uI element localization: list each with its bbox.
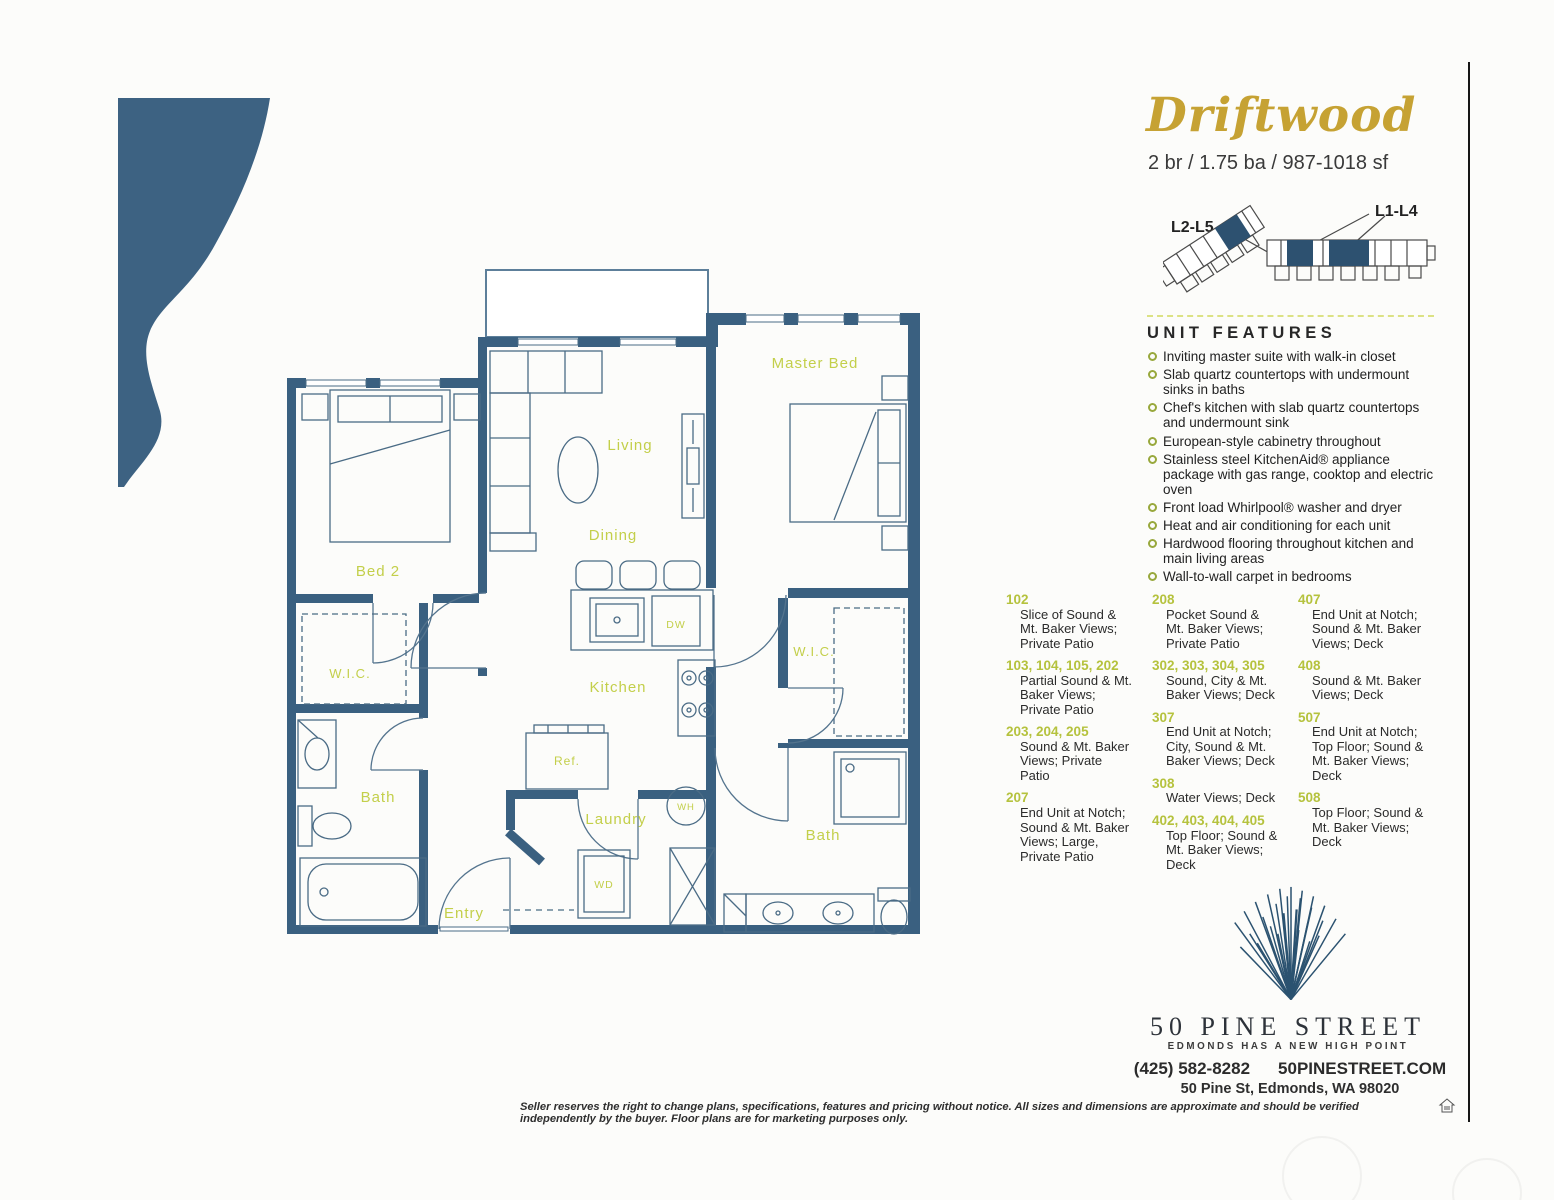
room-label-laundry: Laundry [585, 811, 646, 828]
scan-artifact-circle [1452, 1158, 1522, 1200]
page-edge-line [1468, 62, 1470, 1122]
label-refrigerator: Ref. [554, 754, 580, 768]
brand-contact: (425) 582-828250PINESTREET.COM [1100, 1059, 1480, 1079]
label-dishwasher: DW [666, 619, 686, 631]
unit-list-column-1: 102Slice of Sound & Mt. Baker Views; Pri… [1006, 592, 1136, 871]
bullet-icon [1148, 539, 1157, 548]
kitchen-island [571, 561, 713, 650]
room-label-master-bed: Master Bed [772, 355, 859, 372]
unit-entry: 307End Unit at Notch; City, Sound & Mt. … [1152, 710, 1282, 769]
brand-logo-name: 50 PINE STREET [1140, 1012, 1436, 1042]
room-label-kitchen: Kitchen [589, 679, 646, 696]
feature-item: Slab quartz countertops with undermount … [1147, 367, 1435, 397]
feature-item: Front load Whirlpool® washer and dryer [1147, 500, 1435, 515]
room-label-entry: Entry [444, 905, 484, 922]
features-divider [1147, 315, 1434, 317]
highlighted-unit-1 [1287, 240, 1313, 266]
phone-number: (425) 582-8282 [1134, 1059, 1250, 1078]
scan-artifact-circle [1282, 1136, 1362, 1200]
feature-item: Hardwood flooring throughout kitchen and… [1147, 536, 1435, 566]
feature-item: Inviting master suite with walk-in close… [1147, 349, 1435, 364]
feature-item: Chef's kitchen with slab quartz countert… [1147, 400, 1435, 430]
label-washer-dryer: WD [594, 879, 614, 891]
tv-console [682, 414, 704, 518]
keyplan-right-label: L1-L4 [1375, 203, 1418, 220]
unit-entry: 407End Unit at Notch; Sound & Mt. Baker … [1298, 592, 1428, 651]
feature-item: European-style cabinetry throughout [1147, 434, 1435, 449]
unit-entry: 507End Unit at Notch; Top Floor; Sound &… [1298, 710, 1428, 784]
floor-plan: Living Master Bed Bed 2 Dining Kitchen W… [278, 258, 928, 946]
bullet-icon [1148, 352, 1157, 361]
unit-entry: 308Water Views; Deck [1152, 776, 1282, 806]
pine-tuft-icon [1216, 884, 1366, 1008]
coffee-table [558, 437, 598, 503]
room-label-dining: Dining [589, 527, 638, 544]
plan-title: Driftwood [1146, 88, 1416, 143]
room-label-living: Living [607, 437, 652, 454]
unit-entry: 103, 104, 105, 202Partial Sound & Mt. Ba… [1006, 658, 1136, 717]
bullet-icon [1148, 403, 1157, 412]
website: 50PINESTREET.COM [1278, 1059, 1446, 1078]
unit-list-column-2: 208Pocket Sound & Mt. Baker Views; Priva… [1152, 592, 1282, 879]
bullet-icon [1148, 572, 1157, 581]
room-label-bath-right: Bath [806, 827, 841, 844]
feature-item: Wall-to-wall carpet in bedrooms [1147, 569, 1435, 584]
brand-tagline: EDMONDS HAS A NEW HIGH POINT [1140, 1041, 1436, 1052]
feature-item: Heat and air conditioning for each unit [1147, 518, 1435, 533]
room-label-wic-right: W.I.C. [793, 644, 834, 659]
bed2-furniture [302, 390, 480, 542]
unit-entry: 302, 303, 304, 305Sound, City & Mt. Bake… [1152, 658, 1282, 703]
bath-left-fixtures [298, 720, 426, 926]
plan-specs: 2 br / 1.75 ba / 987-1018 sf [1148, 152, 1388, 175]
features-list: Inviting master suite with walk-in close… [1147, 349, 1435, 588]
angled-wall [508, 832, 542, 862]
room-label-bed2: Bed 2 [356, 563, 400, 580]
furniture [298, 351, 910, 934]
unit-entry: 207End Unit at Notch; Sound & Mt. Baker … [1006, 790, 1136, 864]
brand-address: 50 Pine St, Edmonds, WA 98020 [1100, 1081, 1480, 1097]
unit-entry: 102Slice of Sound & Mt. Baker Views; Pri… [1006, 592, 1136, 651]
room-label-wic-left: W.I.C. [329, 666, 370, 681]
balcony [486, 270, 708, 337]
unit-list-column-3: 407End Unit at Notch; Sound & Mt. Baker … [1298, 592, 1428, 857]
equal-housing-icon [1438, 1097, 1456, 1115]
bullet-icon [1148, 370, 1157, 379]
features-heading: UNIT FEATURES [1147, 324, 1336, 343]
unit-entry: 402, 403, 404, 405Top Floor; Sound & Mt.… [1152, 813, 1282, 872]
unit-entry: 408Sound & Mt. Baker Views; Deck [1298, 658, 1428, 703]
bullet-icon [1148, 455, 1157, 464]
unit-entry: 208Pocket Sound & Mt. Baker Views; Priva… [1152, 592, 1282, 651]
room-label-bath-left: Bath [361, 789, 396, 806]
bullet-icon [1148, 521, 1157, 530]
highlighted-unit-2 [1329, 240, 1369, 266]
unit-entry: 203, 204, 205Sound & Mt. Baker Views; Pr… [1006, 724, 1136, 783]
disclaimer-text: Seller reserves the right to change plan… [520, 1101, 1432, 1125]
bullet-icon [1148, 503, 1157, 512]
building-key-plan: L2-L5 L1-L4 [1163, 196, 1440, 304]
driftwood-swoosh-graphic [112, 95, 277, 500]
wic-left-closet [302, 614, 406, 704]
feature-item: Stainless steel KitchenAid® appliance pa… [1147, 452, 1435, 497]
wic-right-closet [834, 608, 904, 736]
bullet-icon [1148, 437, 1157, 446]
flyer-page: Living Master Bed Bed 2 Dining Kitchen W… [0, 0, 1554, 1200]
label-water-heater: WH [677, 802, 695, 813]
unit-entry: 508Top Floor; Sound & Mt. Baker Views; D… [1298, 790, 1428, 849]
master-bed-furniture [790, 376, 908, 550]
sofa [490, 351, 602, 551]
